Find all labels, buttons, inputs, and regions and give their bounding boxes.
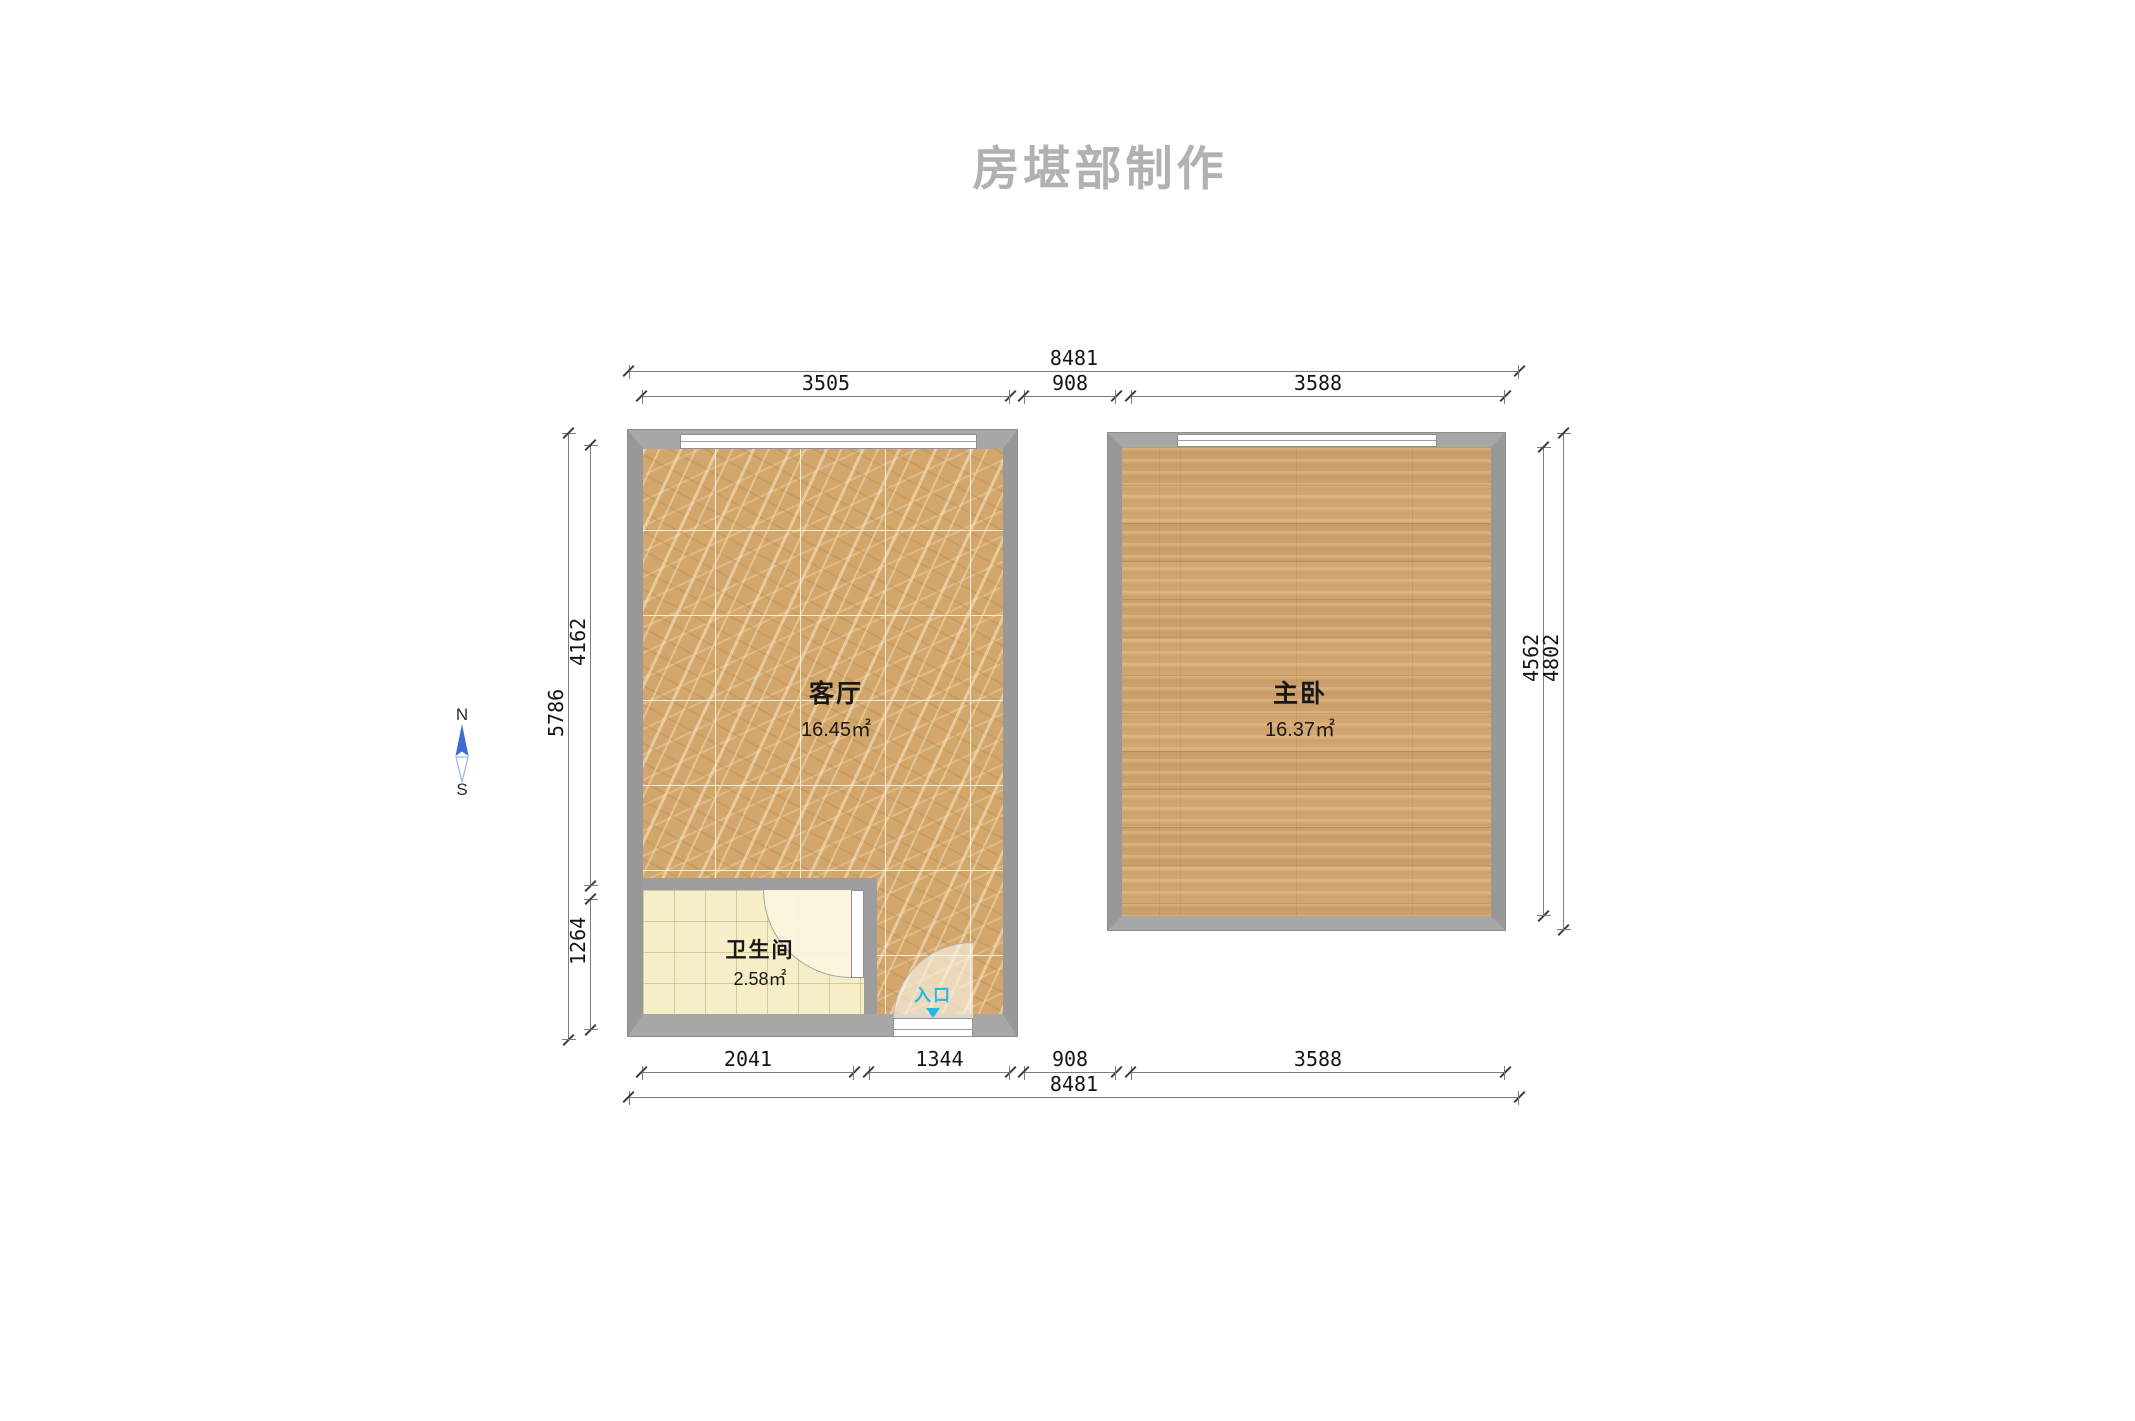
compass-north-needle [456,724,469,756]
page-title: 房堪部制作 [850,130,1350,199]
bathroom-name: 卫生间 [650,934,870,964]
entry-arrow-icon [926,1008,940,1018]
master-bedroom-name: 主卧 [1190,674,1410,710]
living-room-name: 客厅 [726,674,946,710]
dim-top-gap-width: 908 [1024,396,1116,397]
floor-plan-canvas: 房堪部制作 N S 入口 客厅 16.45㎡ 主卧 16.37㎡ 卫生间 2.5… [0,0,2135,1421]
entry-door-threshold [893,1018,973,1037]
living-room-label: 客厅 16.45㎡ [726,674,946,742]
bathroom-label: 卫生间 2.58㎡ [650,934,870,991]
compass-icon: N S [442,704,482,796]
master-bedroom-area: 16.37㎡ [1190,713,1410,742]
bathroom-partition-wall-top [643,878,877,890]
dim-left-bathroom-height: 1264 [590,899,591,1030]
compass-south-needle [456,757,468,782]
dim-top-living-width: 3505 [642,396,1010,397]
living-room-area: 16.45㎡ [726,713,946,742]
living-room-window [680,434,977,449]
bathroom-area: 2.58㎡ [650,965,870,991]
dim-bottom-overall: 8481 [629,1097,1519,1098]
master-bedroom-window [1177,434,1437,447]
dim-left-living-height: 4162 [590,445,591,886]
master-bedroom-label: 主卧 16.37㎡ [1190,674,1410,742]
dim-top-bedroom-width: 3588 [1131,396,1505,397]
compass-south-label: S [456,780,467,796]
entry-label: 入口 [893,981,973,1006]
compass-north-label: N [456,705,468,724]
dim-right-bedroom-outer-height: 4802 [1563,433,1564,930]
